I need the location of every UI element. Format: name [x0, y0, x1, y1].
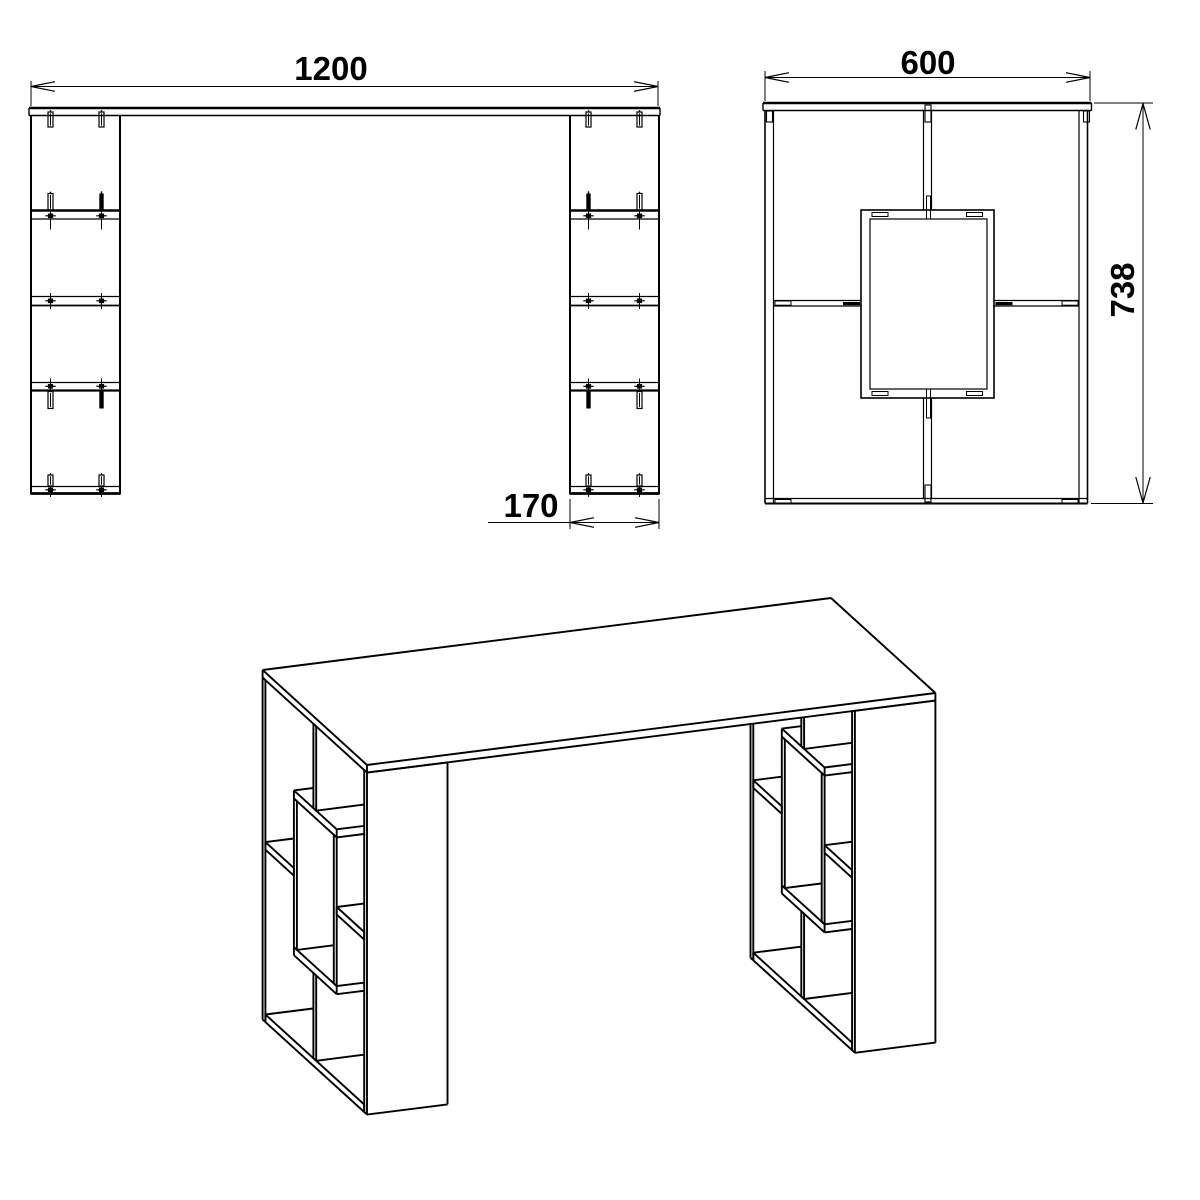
svg-text:738: 738: [1104, 262, 1141, 317]
svg-text:600: 600: [900, 44, 955, 81]
svg-text:1200: 1200: [294, 50, 367, 87]
svg-text:170: 170: [503, 487, 558, 524]
